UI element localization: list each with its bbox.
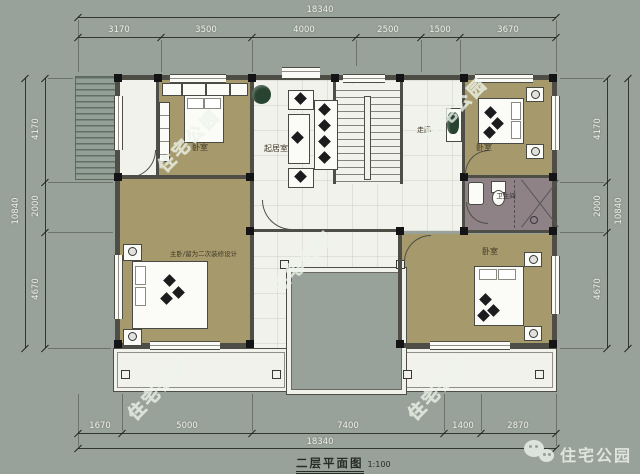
ext-line	[48, 232, 113, 233]
nightstand	[526, 144, 544, 159]
dim-line-bottom-total	[78, 448, 556, 449]
dim-top-total: 18340	[297, 5, 343, 15]
ext-line	[78, 394, 79, 446]
window-bedroom-br-south	[430, 341, 510, 350]
column	[331, 74, 339, 82]
wall-bathroom-north	[465, 175, 555, 178]
brand-logo-text: 住宅公园	[560, 442, 632, 466]
dim-bottom-seg: 1670	[82, 421, 118, 431]
dim-tick	[21, 345, 29, 353]
balcony-left-railing	[117, 352, 285, 388]
dim-tick	[603, 345, 611, 353]
dim-bottom-seg: 1400	[445, 421, 481, 431]
balcony-right	[395, 348, 557, 392]
column	[549, 227, 557, 235]
dim-line-right-total	[628, 78, 629, 348]
pillow	[511, 102, 521, 120]
pillow	[511, 121, 521, 139]
column	[460, 227, 468, 235]
column	[154, 74, 162, 82]
dim-line-bottom-segments	[78, 433, 556, 434]
label-bedroom-top-right: 卧室	[462, 143, 506, 152]
dim-line-top-total	[78, 17, 556, 18]
dim-line-left-segments	[45, 78, 46, 348]
nightstand	[524, 252, 542, 267]
window-master-south	[150, 341, 220, 350]
brand-logo: 住宅公园	[524, 438, 636, 468]
lamp	[529, 329, 538, 338]
dresser	[162, 83, 182, 96]
dim-top-seg: 1500	[422, 25, 458, 35]
ext-line	[556, 20, 557, 72]
shower-area	[514, 180, 552, 228]
dim-left-seg: 2000	[31, 186, 41, 226]
ext-line	[78, 20, 79, 72]
ext-line	[122, 394, 123, 431]
balcony-left	[113, 348, 289, 392]
balcony-post-1	[121, 370, 130, 379]
dim-top-seg: 2500	[370, 25, 406, 35]
dim-line-left-total	[25, 78, 26, 348]
wechat-icon-small-bubble	[539, 449, 554, 462]
window-master-west	[114, 255, 123, 319]
dim-tick	[624, 345, 632, 353]
drawing-title: 二层平面图1:100	[296, 452, 391, 471]
balcony-post-4	[535, 370, 544, 379]
dim-bottom-seg: 5000	[169, 421, 205, 431]
pillow	[498, 269, 516, 280]
wall-bathroom-south	[462, 230, 555, 233]
ext-line	[252, 40, 253, 72]
dim-right-total: 10840	[614, 188, 624, 234]
label-bedroom-bottom-right: 卧室	[468, 247, 512, 256]
dim-left-seg: 4670	[31, 269, 41, 309]
window-bedroom-tl	[170, 74, 226, 83]
dim-right-seg: 4170	[593, 109, 603, 149]
dim-bottom-total: 18340	[297, 437, 343, 447]
potted-plant	[252, 85, 271, 104]
column	[248, 74, 256, 82]
balcony-post-3	[403, 370, 412, 379]
wall-bedroom-br-west	[398, 229, 402, 348]
ext-line	[356, 40, 357, 66]
window-stairs-top	[343, 74, 385, 83]
wechat-icon-eye	[529, 445, 532, 448]
dim-line-right-segments	[607, 78, 608, 348]
ext-line	[481, 394, 482, 431]
wechat-icon-eye	[543, 453, 546, 456]
label-living-room: 起居室	[253, 144, 299, 153]
nightstand	[123, 244, 142, 261]
column	[246, 173, 254, 181]
dim-left-seg: 4170	[31, 109, 41, 149]
drawing-title-text: 二层平面图	[296, 456, 364, 474]
lamp	[128, 332, 137, 341]
pillow	[479, 269, 497, 280]
dim-top-seg: 3500	[188, 25, 224, 35]
column	[114, 74, 122, 82]
ext-line	[48, 78, 73, 79]
nightstand	[526, 87, 544, 102]
column	[246, 227, 254, 235]
terrace-roof-hatch	[75, 76, 119, 180]
dim-bottom-seg: 7400	[330, 421, 366, 431]
drawing-title-scale: 1:100	[368, 460, 391, 469]
dim-top-seg: 3670	[490, 25, 526, 35]
window-bedroom-br-east	[551, 256, 560, 314]
balcony-post-2	[272, 370, 281, 379]
column	[246, 340, 254, 348]
pillow	[135, 266, 146, 285]
lamp	[529, 255, 538, 264]
column	[114, 173, 122, 181]
label-bathroom: 卫生间	[484, 192, 528, 201]
wechat-icon-eye	[548, 453, 551, 456]
floor-plan-canvas: 卧室 起居室 走廊 卧室 卫生间 主卧/留为二次装修设计 卧室 住宅公园 住宅公…	[0, 0, 640, 474]
ext-line	[460, 40, 461, 72]
label-master-bedroom: 主卧/留为二次装修设计	[146, 250, 261, 259]
pillow	[135, 287, 146, 306]
ext-line	[161, 40, 162, 72]
ext-line	[560, 348, 604, 349]
ext-line	[560, 232, 604, 233]
wall-master-east	[250, 178, 254, 348]
dim-bottom-seg: 2870	[500, 421, 536, 431]
lamp	[128, 247, 137, 256]
ext-line	[48, 182, 113, 183]
ext-line	[252, 394, 253, 431]
column	[396, 74, 404, 82]
wechat-icon-eye	[535, 445, 538, 448]
column	[114, 340, 122, 348]
planter-box	[282, 67, 320, 79]
dim-left-total: 10840	[11, 188, 21, 234]
lamp	[531, 90, 540, 99]
window-bedroom-tr-east	[551, 96, 560, 150]
lamp	[531, 147, 540, 156]
column	[460, 173, 468, 181]
ext-line	[560, 182, 604, 183]
wall-stair-east	[400, 82, 403, 184]
nightstand	[524, 326, 542, 341]
dim-line-top-segments	[78, 37, 556, 38]
staircase-center-rail	[364, 96, 371, 180]
window-porch-west	[114, 96, 123, 150]
dim-top-seg: 3170	[101, 25, 137, 35]
column	[549, 74, 557, 82]
courtyard-void	[287, 268, 406, 394]
shower-drain	[530, 216, 538, 224]
bathroom-sink	[468, 182, 484, 205]
dim-right-seg: 4670	[593, 269, 603, 309]
ext-line	[48, 348, 111, 349]
balcony-right-railing	[399, 352, 553, 388]
dresser	[230, 83, 248, 96]
dim-top-seg: 4000	[286, 25, 322, 35]
column	[396, 227, 404, 235]
nightstand	[123, 329, 142, 346]
ext-line	[560, 78, 604, 79]
dim-right-seg: 2000	[593, 186, 603, 226]
column	[549, 340, 557, 348]
column	[396, 340, 404, 348]
ext-line	[421, 40, 422, 72]
